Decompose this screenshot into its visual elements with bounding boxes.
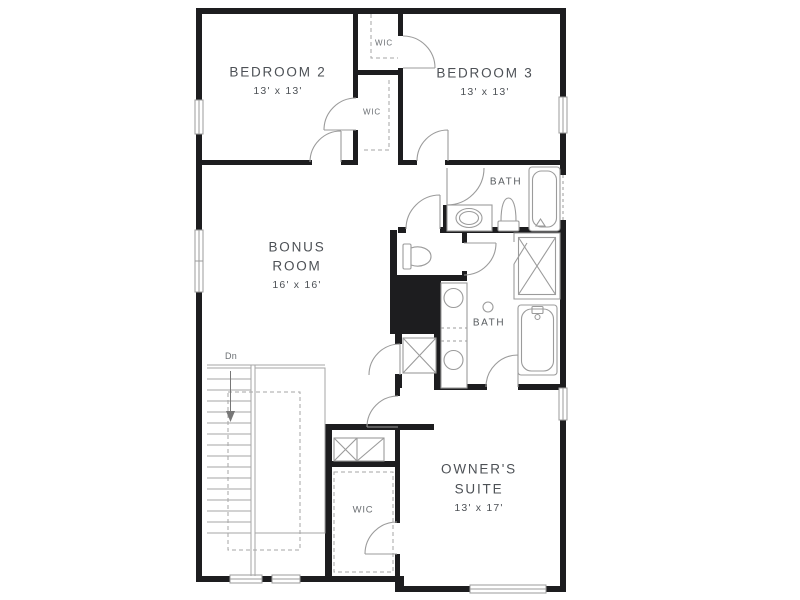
door-wic-bedroom2: [324, 98, 356, 130]
wall-wic-owner-right-a: [395, 467, 400, 523]
toilet-upper: [498, 198, 519, 231]
wall-wc-bottom: [390, 275, 467, 281]
fixtures: [334, 167, 560, 461]
door-bedroom3: [417, 130, 448, 161]
bonus-room-name-2: ROOM: [272, 259, 321, 274]
wall-wic-owner-left: [325, 428, 332, 576]
stairs-dn-label: Dn: [225, 351, 237, 361]
bath-owner-fixture-circle: [483, 302, 493, 312]
bedroom2-dims: 13' x 13': [253, 85, 302, 97]
owners-suite-name-2: SUITE: [455, 482, 504, 497]
bathtub-owner: [518, 305, 557, 375]
bathtub-upper: [529, 167, 560, 231]
stair-down-arrow-head: [226, 411, 235, 422]
wall-left: [196, 8, 202, 582]
linen-closet-bath: [403, 338, 436, 373]
wall-wic-divider: [353, 70, 403, 75]
wall-chase: [390, 281, 441, 334]
wall-right: [560, 8, 566, 592]
wic-owner-label: WIC: [353, 505, 374, 516]
linen-cabinet-owner-hall: [334, 438, 384, 461]
window-stairhall-bottom-2: [272, 575, 300, 583]
stair-treads: [207, 368, 251, 533]
wall-wic-right-lower: [398, 68, 403, 165]
wic-bedroom3-label: WIC: [375, 39, 393, 48]
window-stairhall-bottom-1: [230, 575, 262, 583]
toilet-water-closet: [403, 244, 431, 269]
door-bath-upper: [447, 168, 484, 205]
wic-bedroom2-label: WIC: [363, 108, 381, 117]
door-owner-entry: [367, 396, 398, 427]
floor-plan-drawing: [0, 0, 800, 600]
bedroom3-name: BEDROOM 3: [436, 66, 533, 81]
wall-linen-left-b: [395, 374, 402, 388]
owners-suite-name-1: OWNER'S: [441, 462, 517, 477]
wall-linen2-bottom: [325, 461, 400, 467]
floor-plan: BEDROOM 2 13' x 13' BEDROOM 3 13' x 13' …: [0, 0, 800, 600]
wall-owner-entry-jamb: [395, 388, 400, 396]
wall-hall-top-a: [398, 160, 417, 165]
door-masterbath-hall: [406, 195, 440, 229]
wall-wic-right-upper: [398, 14, 403, 36]
stair-well-outline: [255, 368, 325, 533]
closet-shelving: [334, 14, 398, 572]
wall-linen-left-a: [395, 334, 402, 344]
door-wic-bedroom3: [403, 36, 435, 68]
wall-bedroom3-bottom: [453, 160, 566, 165]
owners-suite-dims: 13' x 17': [454, 502, 503, 514]
bedroom2-name: BEDROOM 2: [229, 65, 326, 80]
vanity-owner: [441, 283, 467, 388]
wic-bedroom3-shelf: [371, 14, 398, 58]
door-water-closet: [464, 243, 496, 275]
wall-wc-left: [390, 230, 397, 281]
bonus-room-name-1: BONUS: [268, 240, 325, 255]
door-bedroom2: [310, 131, 341, 162]
window-owner-right: [559, 388, 567, 420]
wall-linen2-right: [395, 430, 400, 461]
wall-top: [196, 8, 566, 14]
wall-wic-owner-right-b: [395, 554, 400, 592]
window-bedroom3-right: [559, 97, 567, 133]
wall-wic-left-lower: [353, 130, 358, 165]
window-owner-bottom: [470, 585, 546, 593]
wic-owner-shelf: [334, 472, 393, 572]
stair-void-dashed: [228, 392, 300, 550]
door-wic-owner: [365, 522, 397, 554]
wall-hall-bottom: [398, 227, 406, 233]
door-linen-closet: [369, 344, 400, 375]
wall-bedroom2-bottom: [196, 160, 312, 165]
bath-owner-label: BATH: [473, 318, 505, 329]
wall-hall-top-jamb: [445, 160, 453, 165]
stairs: [207, 365, 325, 576]
door-owner-to-bath: [486, 355, 518, 387]
wall-wic-left-upper: [353, 14, 358, 98]
bath-upper-label: BATH: [490, 177, 522, 188]
bonus-room-dims: 16' x 16': [272, 279, 321, 291]
window-bedroom2-left: [195, 100, 203, 134]
wall-wc-right-a: [462, 233, 467, 243]
bedroom3-dims: 13' x 13': [460, 86, 509, 98]
wall-wc-right-b: [462, 271, 467, 281]
window-bonus-left: [195, 230, 203, 292]
sink-upper: [447, 205, 492, 231]
shower: [514, 233, 560, 299]
